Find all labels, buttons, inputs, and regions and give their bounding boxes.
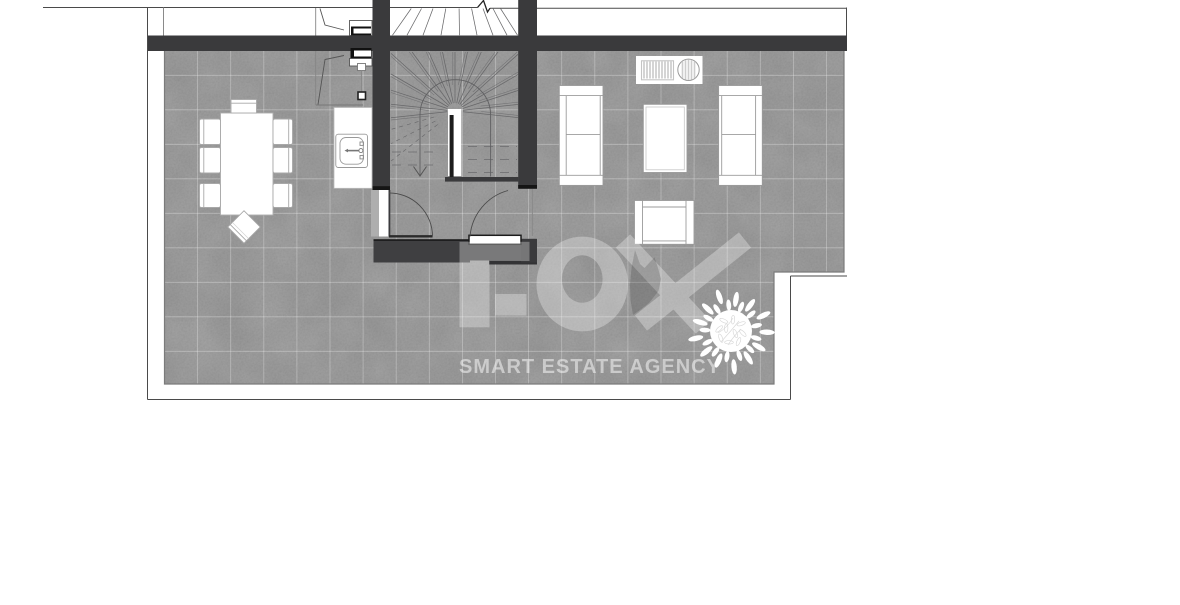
svg-text:SMART ESTATE AGENCY: SMART ESTATE AGENCY <box>459 356 721 378</box>
